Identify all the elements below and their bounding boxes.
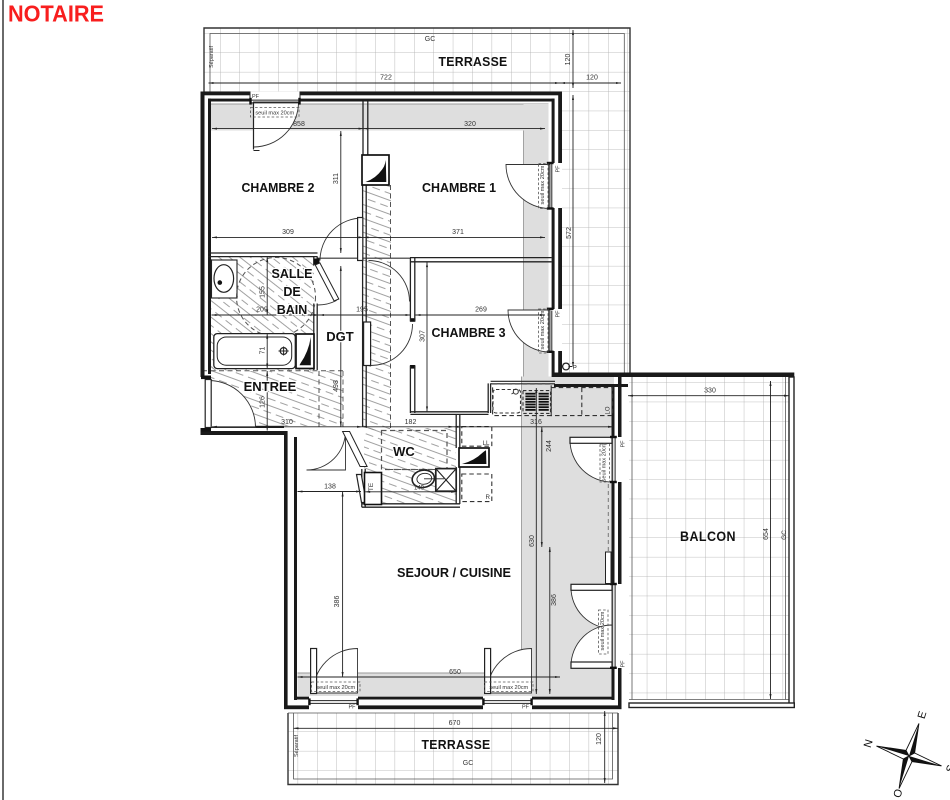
svg-text:LL: LL	[483, 440, 490, 447]
svg-text:PF: PF	[556, 310, 562, 318]
svg-text:PF: PF	[522, 705, 530, 711]
svg-text:120: 120	[565, 54, 572, 66]
svg-text:GC: GC	[425, 36, 436, 43]
svg-text:CHAMBRE 3: CHAMBRE 3	[432, 325, 506, 340]
svg-text:195: 195	[356, 307, 368, 314]
svg-text:seuil max 20cm: seuil max 20cm	[540, 310, 546, 349]
svg-text:630: 630	[529, 535, 536, 547]
svg-text:LO: LO	[606, 406, 612, 414]
svg-text:120: 120	[586, 75, 598, 82]
svg-text:371: 371	[452, 229, 464, 236]
svg-text:386: 386	[551, 594, 558, 606]
svg-text:Séparatif: Séparatif	[209, 46, 215, 68]
svg-text:seuil max 20cm: seuil max 20cm	[489, 685, 528, 691]
svg-text:149: 149	[414, 486, 425, 492]
svg-text:PF: PF	[621, 660, 627, 668]
svg-text:126: 126	[260, 396, 267, 408]
svg-text:seuil max 20cm: seuil max 20cm	[255, 111, 294, 117]
svg-text:seuil max 20cm: seuil max 20cm	[316, 685, 355, 691]
svg-text:670: 670	[449, 720, 461, 727]
svg-text:ENTREE: ENTREE	[244, 379, 297, 394]
svg-text:320: 320	[464, 121, 476, 128]
svg-text:120: 120	[596, 733, 603, 745]
svg-text:PF: PF	[348, 705, 356, 711]
svg-text:209: 209	[256, 307, 268, 314]
svg-text:SALLE: SALLE	[272, 267, 313, 281]
svg-text:seuil max 20cm: seuil max 20cm	[540, 165, 546, 204]
svg-text:SEJOUR / CUISINE: SEJOUR / CUISINE	[397, 565, 511, 580]
svg-text:244: 244	[546, 440, 553, 452]
svg-text:PF: PF	[252, 94, 260, 100]
svg-text:269: 269	[475, 307, 487, 314]
svg-text:GC: GC	[781, 530, 788, 540]
svg-text:TE: TE	[368, 482, 375, 491]
svg-text:BALCON: BALCON	[680, 528, 736, 544]
svg-text:309: 309	[282, 229, 294, 236]
svg-text:PF: PF	[621, 440, 627, 448]
svg-text:650: 650	[449, 669, 461, 676]
svg-text:PF: PF	[556, 165, 562, 173]
svg-text:330: 330	[704, 388, 716, 395]
svg-text:654: 654	[763, 528, 770, 540]
svg-text:GC: GC	[463, 760, 474, 767]
svg-text:Séparatif: Séparatif	[294, 735, 300, 757]
svg-text:CHAMBRE 2: CHAMBRE 2	[242, 180, 315, 195]
svg-text:BAIN: BAIN	[277, 303, 308, 317]
svg-text:DGT: DGT	[326, 329, 354, 344]
svg-text:310: 310	[281, 419, 293, 426]
svg-text:138: 138	[324, 484, 336, 491]
svg-text:NOTAIRE: NOTAIRE	[8, 1, 104, 27]
svg-text:R: R	[486, 494, 491, 501]
svg-text:311: 311	[333, 173, 340, 184]
svg-text:TERRASSE: TERRASSE	[439, 54, 508, 69]
svg-text:386: 386	[334, 596, 341, 608]
svg-text:seuil max 20cm: seuil max 20cm	[601, 442, 607, 481]
svg-text:seuil max 20cm: seuil max 20cm	[600, 611, 606, 650]
svg-text:858: 858	[293, 121, 305, 128]
svg-text:WC: WC	[393, 444, 415, 459]
svg-text:572: 572	[566, 227, 573, 239]
svg-text:DE: DE	[283, 285, 300, 299]
svg-text:71: 71	[260, 347, 267, 355]
svg-text:498: 498	[333, 380, 340, 392]
svg-text:TERRASSE: TERRASSE	[422, 737, 491, 752]
svg-text:722: 722	[380, 75, 392, 82]
svg-text:307: 307	[420, 330, 427, 342]
svg-text:182: 182	[405, 419, 417, 426]
svg-text:155: 155	[260, 286, 267, 298]
svg-text:CHAMBRE 1: CHAMBRE 1	[422, 180, 496, 195]
